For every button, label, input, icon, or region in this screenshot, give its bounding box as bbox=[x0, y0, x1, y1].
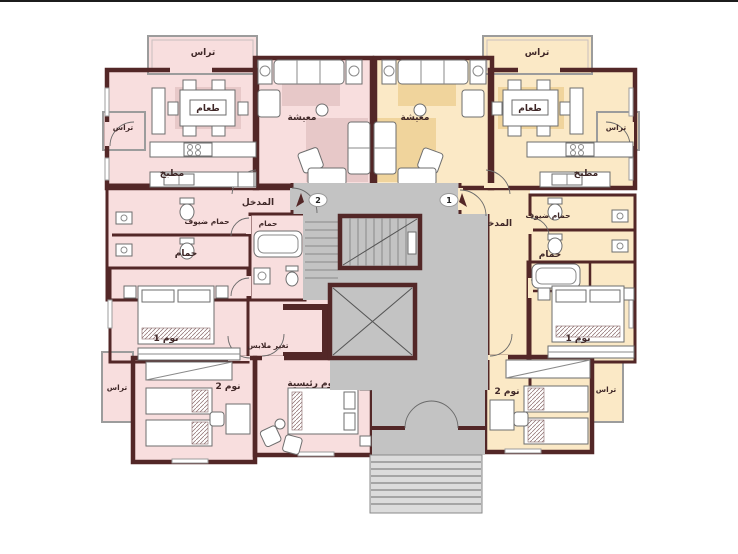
room-label-living-right: معيشة bbox=[401, 113, 430, 123]
room-label-terrace-top-left: تراس bbox=[191, 48, 215, 58]
armchair bbox=[282, 434, 303, 455]
entrance-lobby bbox=[372, 345, 485, 455]
chair bbox=[514, 412, 528, 426]
room-label-dressing-left: تغير ملابس bbox=[247, 341, 288, 350]
unit-number-left: 2 bbox=[315, 196, 321, 205]
bedroom1-right bbox=[538, 286, 634, 358]
fridge bbox=[238, 172, 254, 187]
room-label-bedroom1-left: نوم 1 bbox=[153, 334, 178, 344]
room-label-bedroom2-right: نوم 2 bbox=[494, 387, 519, 397]
floor-plan-drawing: تراس طعام معيشة تراس مطبخ المدخل حمام ضي… bbox=[0, 0, 738, 554]
room-label-living-left: معيشة bbox=[288, 113, 317, 123]
armchair bbox=[462, 90, 484, 117]
room-label-terrace-bottom-right: تراس bbox=[596, 385, 617, 394]
room-label-guest-bath-left: حمام ضيوف bbox=[184, 217, 229, 226]
room-label-kitchen-left: مطبخ bbox=[160, 169, 185, 179]
room-label-guest-bath-right: حمام ضيوف bbox=[525, 211, 570, 220]
desk bbox=[226, 404, 250, 434]
sofa bbox=[274, 60, 344, 84]
floor-plan-page: تراس طعام معيشة تراس مطبخ المدخل حمام ضي… bbox=[0, 0, 738, 554]
washbasin bbox=[612, 210, 628, 222]
chair bbox=[210, 412, 224, 426]
room-label-kitchen-right: مطبخ bbox=[574, 169, 599, 179]
washbasin bbox=[116, 212, 132, 224]
sideboard bbox=[152, 88, 165, 134]
loveseat bbox=[308, 168, 346, 185]
room-label-dining-left: طعام bbox=[196, 104, 220, 114]
loveseat bbox=[398, 168, 436, 185]
room-label-entrance-left: المدخل bbox=[242, 198, 274, 208]
room-label-main-bath-left: حمام bbox=[259, 219, 278, 228]
washbasin bbox=[116, 244, 132, 256]
desk bbox=[490, 400, 514, 430]
room-label-master-left: نوم رئيسية bbox=[287, 379, 336, 389]
room-label-terrace-side-right: تراس bbox=[606, 123, 627, 132]
room-label-bath-right: حمام bbox=[539, 250, 562, 260]
toilet bbox=[286, 272, 298, 286]
sideboard bbox=[570, 88, 583, 134]
room-label-terrace-bottom-left: تراس bbox=[107, 383, 128, 392]
room-label-bedroom1-right: نوم 1 bbox=[565, 334, 590, 344]
washbasin bbox=[612, 240, 628, 252]
room-label-terrace-top-right: تراس bbox=[525, 48, 549, 58]
unit-number-right: 1 bbox=[446, 196, 452, 205]
room-label-bath-left: حمام bbox=[175, 249, 198, 259]
room-label-terrace-side-left: تراس bbox=[113, 123, 134, 132]
room-label-dining-right: طعام bbox=[518, 104, 542, 114]
washing-machine bbox=[254, 268, 270, 284]
armchair bbox=[258, 90, 280, 117]
room-label-bedroom2-left: نوم 2 bbox=[215, 382, 240, 392]
sofa bbox=[398, 60, 468, 84]
